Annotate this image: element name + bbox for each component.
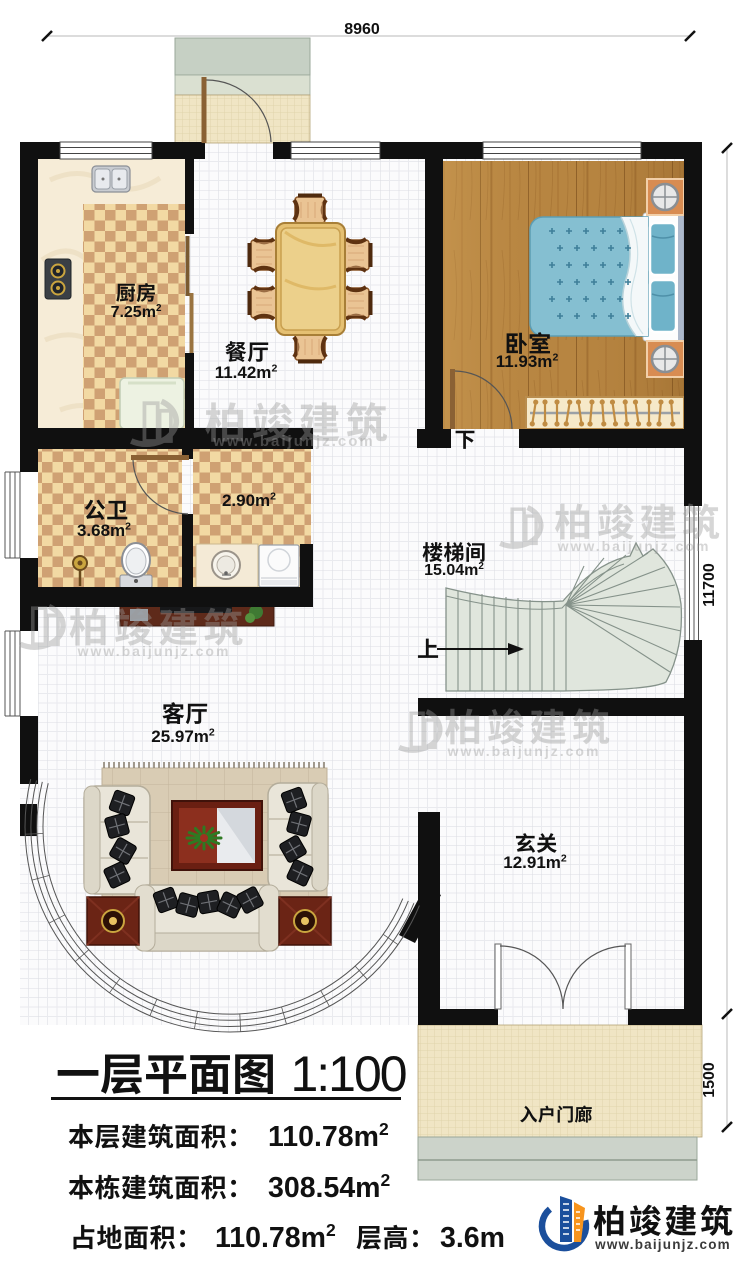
- svg-text:11700: 11700: [701, 563, 718, 607]
- svg-text:11.93m2: 11.93m2: [496, 352, 559, 372]
- svg-text:308.54m2: 308.54m2: [268, 1170, 391, 1204]
- svg-text:www.baijunjz.com: www.baijunjz.com: [77, 643, 231, 659]
- svg-text:11.42m2: 11.42m2: [215, 363, 278, 383]
- svg-text:3.68m2: 3.68m2: [77, 521, 131, 541]
- svg-text:110.78m2: 110.78m2: [215, 1220, 336, 1254]
- svg-text:3.6m: 3.6m: [440, 1222, 505, 1254]
- svg-text:110.78m2: 110.78m2: [268, 1119, 389, 1153]
- svg-text:12.91m2: 12.91m2: [503, 853, 567, 873]
- svg-text:15.04m2: 15.04m2: [424, 561, 484, 579]
- svg-text:2.90m2: 2.90m2: [222, 491, 276, 511]
- svg-text:1500: 1500: [701, 1062, 718, 1098]
- svg-text:1:100: 1:100: [290, 1046, 405, 1102]
- svg-text:www.baijunjz.com: www.baijunjz.com: [594, 1237, 731, 1252]
- svg-text:8960: 8960: [344, 21, 380, 38]
- svg-text:www.baijunjz.com: www.baijunjz.com: [447, 743, 601, 759]
- svg-text:7.25m2: 7.25m2: [111, 303, 162, 321]
- svg-text:25.97m2: 25.97m2: [151, 727, 215, 747]
- svg-text:www.baijunjz.com: www.baijunjz.com: [557, 538, 711, 554]
- svg-text:www.baijunjz.com: www.baijunjz.com: [212, 433, 374, 450]
